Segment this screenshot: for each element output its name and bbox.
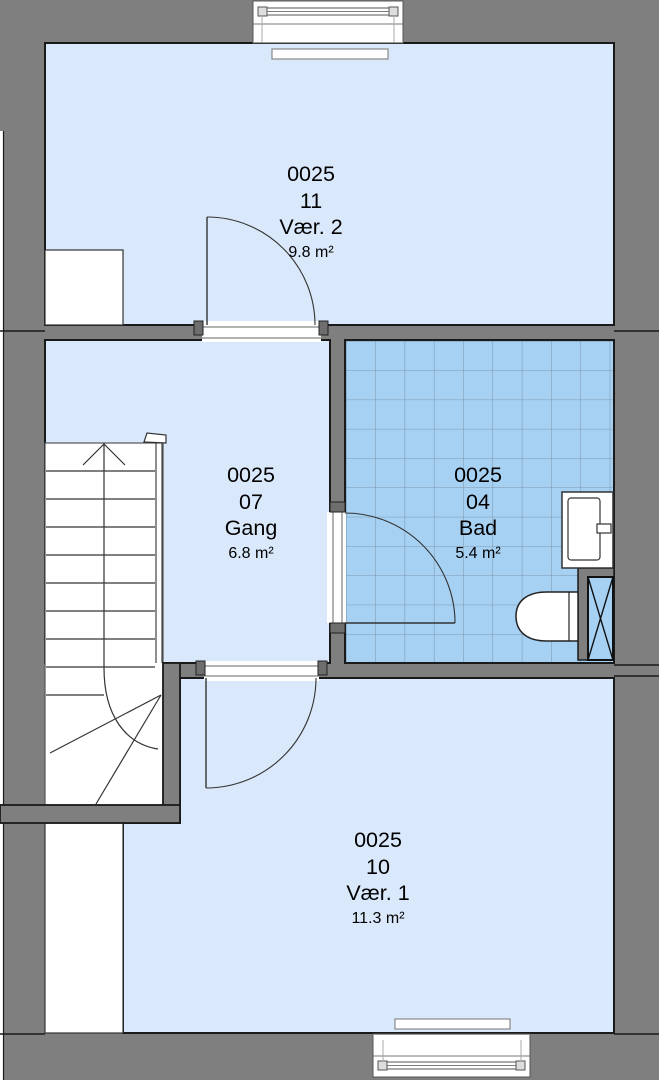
room-label-vaer2: 0025 11 Vær. 2 9.8 m² bbox=[211, 161, 411, 263]
void-shaft-bottom-left bbox=[45, 823, 123, 1033]
room-area: 5.4 m² bbox=[398, 544, 558, 564]
room-code: 0025 bbox=[171, 462, 331, 489]
room-area: 6.8 m² bbox=[171, 544, 331, 564]
room-code: 0025 bbox=[398, 462, 558, 489]
wall-stair-right bbox=[163, 663, 180, 823]
window-bottom bbox=[373, 1034, 530, 1077]
sink bbox=[562, 492, 613, 568]
room-number: 07 bbox=[171, 489, 331, 516]
duct-shaft bbox=[578, 568, 614, 660]
void-shaft-top-left bbox=[45, 250, 123, 325]
room-name: Bad bbox=[398, 515, 558, 542]
radiator-vaer2 bbox=[272, 49, 388, 59]
radiator-vaer1 bbox=[395, 1019, 510, 1029]
room-area: 9.8 m² bbox=[211, 243, 411, 263]
room-code: 0025 bbox=[278, 827, 478, 854]
room-name: Gang bbox=[171, 515, 331, 542]
left-edge-strip bbox=[0, 131, 3, 1080]
room-label-vaer1: 0025 10 Vær. 1 11.3 m² bbox=[278, 827, 478, 929]
wall-stair-bottom bbox=[0, 805, 180, 823]
window-top bbox=[253, 1, 403, 43]
floor-plan: 0025 11 Vær. 2 9.8 m² 0025 07 Gang 6.8 m… bbox=[0, 0, 659, 1080]
room-number: 10 bbox=[278, 854, 478, 881]
room-name: Vær. 2 bbox=[211, 214, 411, 241]
room-number: 11 bbox=[211, 188, 411, 215]
room-number: 04 bbox=[398, 489, 558, 516]
room-label-gang: 0025 07 Gang 6.8 m² bbox=[171, 462, 331, 564]
room-name: Vær. 1 bbox=[278, 880, 478, 907]
room-code: 0025 bbox=[211, 161, 411, 188]
room-label-bad: 0025 04 Bad 5.4 m² bbox=[398, 462, 558, 564]
room-area: 11.3 m² bbox=[278, 909, 478, 929]
toilet bbox=[516, 592, 578, 641]
